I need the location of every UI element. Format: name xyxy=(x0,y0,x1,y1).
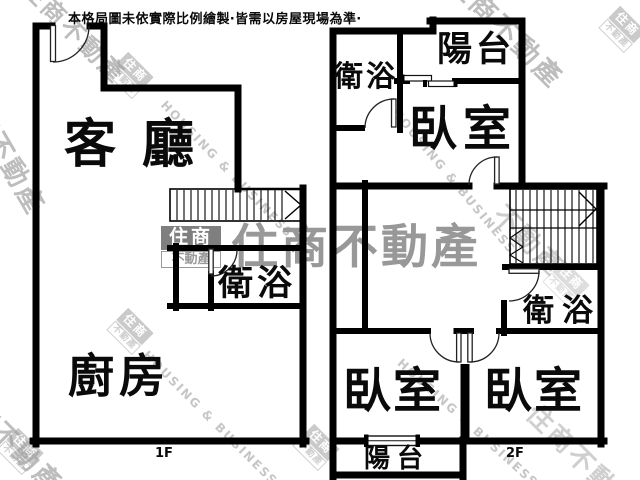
room-label-balcony-bottom: 陽台 xyxy=(364,446,430,472)
room-label-balcony-top: 陽台 xyxy=(437,33,515,68)
disclaimer-text: 本格局圖未依實際比例繪製‧皆需以房屋現場為準‧ xyxy=(68,8,362,27)
room-label-bath-1f: 衛浴 xyxy=(218,267,296,302)
room-label-kitchen: 廚房 xyxy=(68,353,170,399)
room-label-living: 客廳 xyxy=(64,119,220,171)
floorplan-page: 住商不動產 住商不動產 住商不動產 住商不動產 住商不動產 不動產 HOUSIN… xyxy=(0,0,640,480)
room-label-bath-2f-top: 衛浴 xyxy=(334,62,398,91)
floor-label-1f: 1F xyxy=(155,447,173,460)
room-label-bath-2f-mid: 衛浴 xyxy=(523,296,601,327)
label-layer: 本格局圖未依實際比例繪製‧皆需以房屋現場為準‧ 客廳 衛浴 廚房 1F 陽台 衛… xyxy=(0,0,640,480)
floor-label-2f: 2F xyxy=(506,447,524,460)
room-label-bedroom-top: 臥室 xyxy=(409,105,517,153)
room-label-bedroom-left: 臥室 xyxy=(343,367,443,415)
room-label-bedroom-right: 臥室 xyxy=(484,367,584,415)
